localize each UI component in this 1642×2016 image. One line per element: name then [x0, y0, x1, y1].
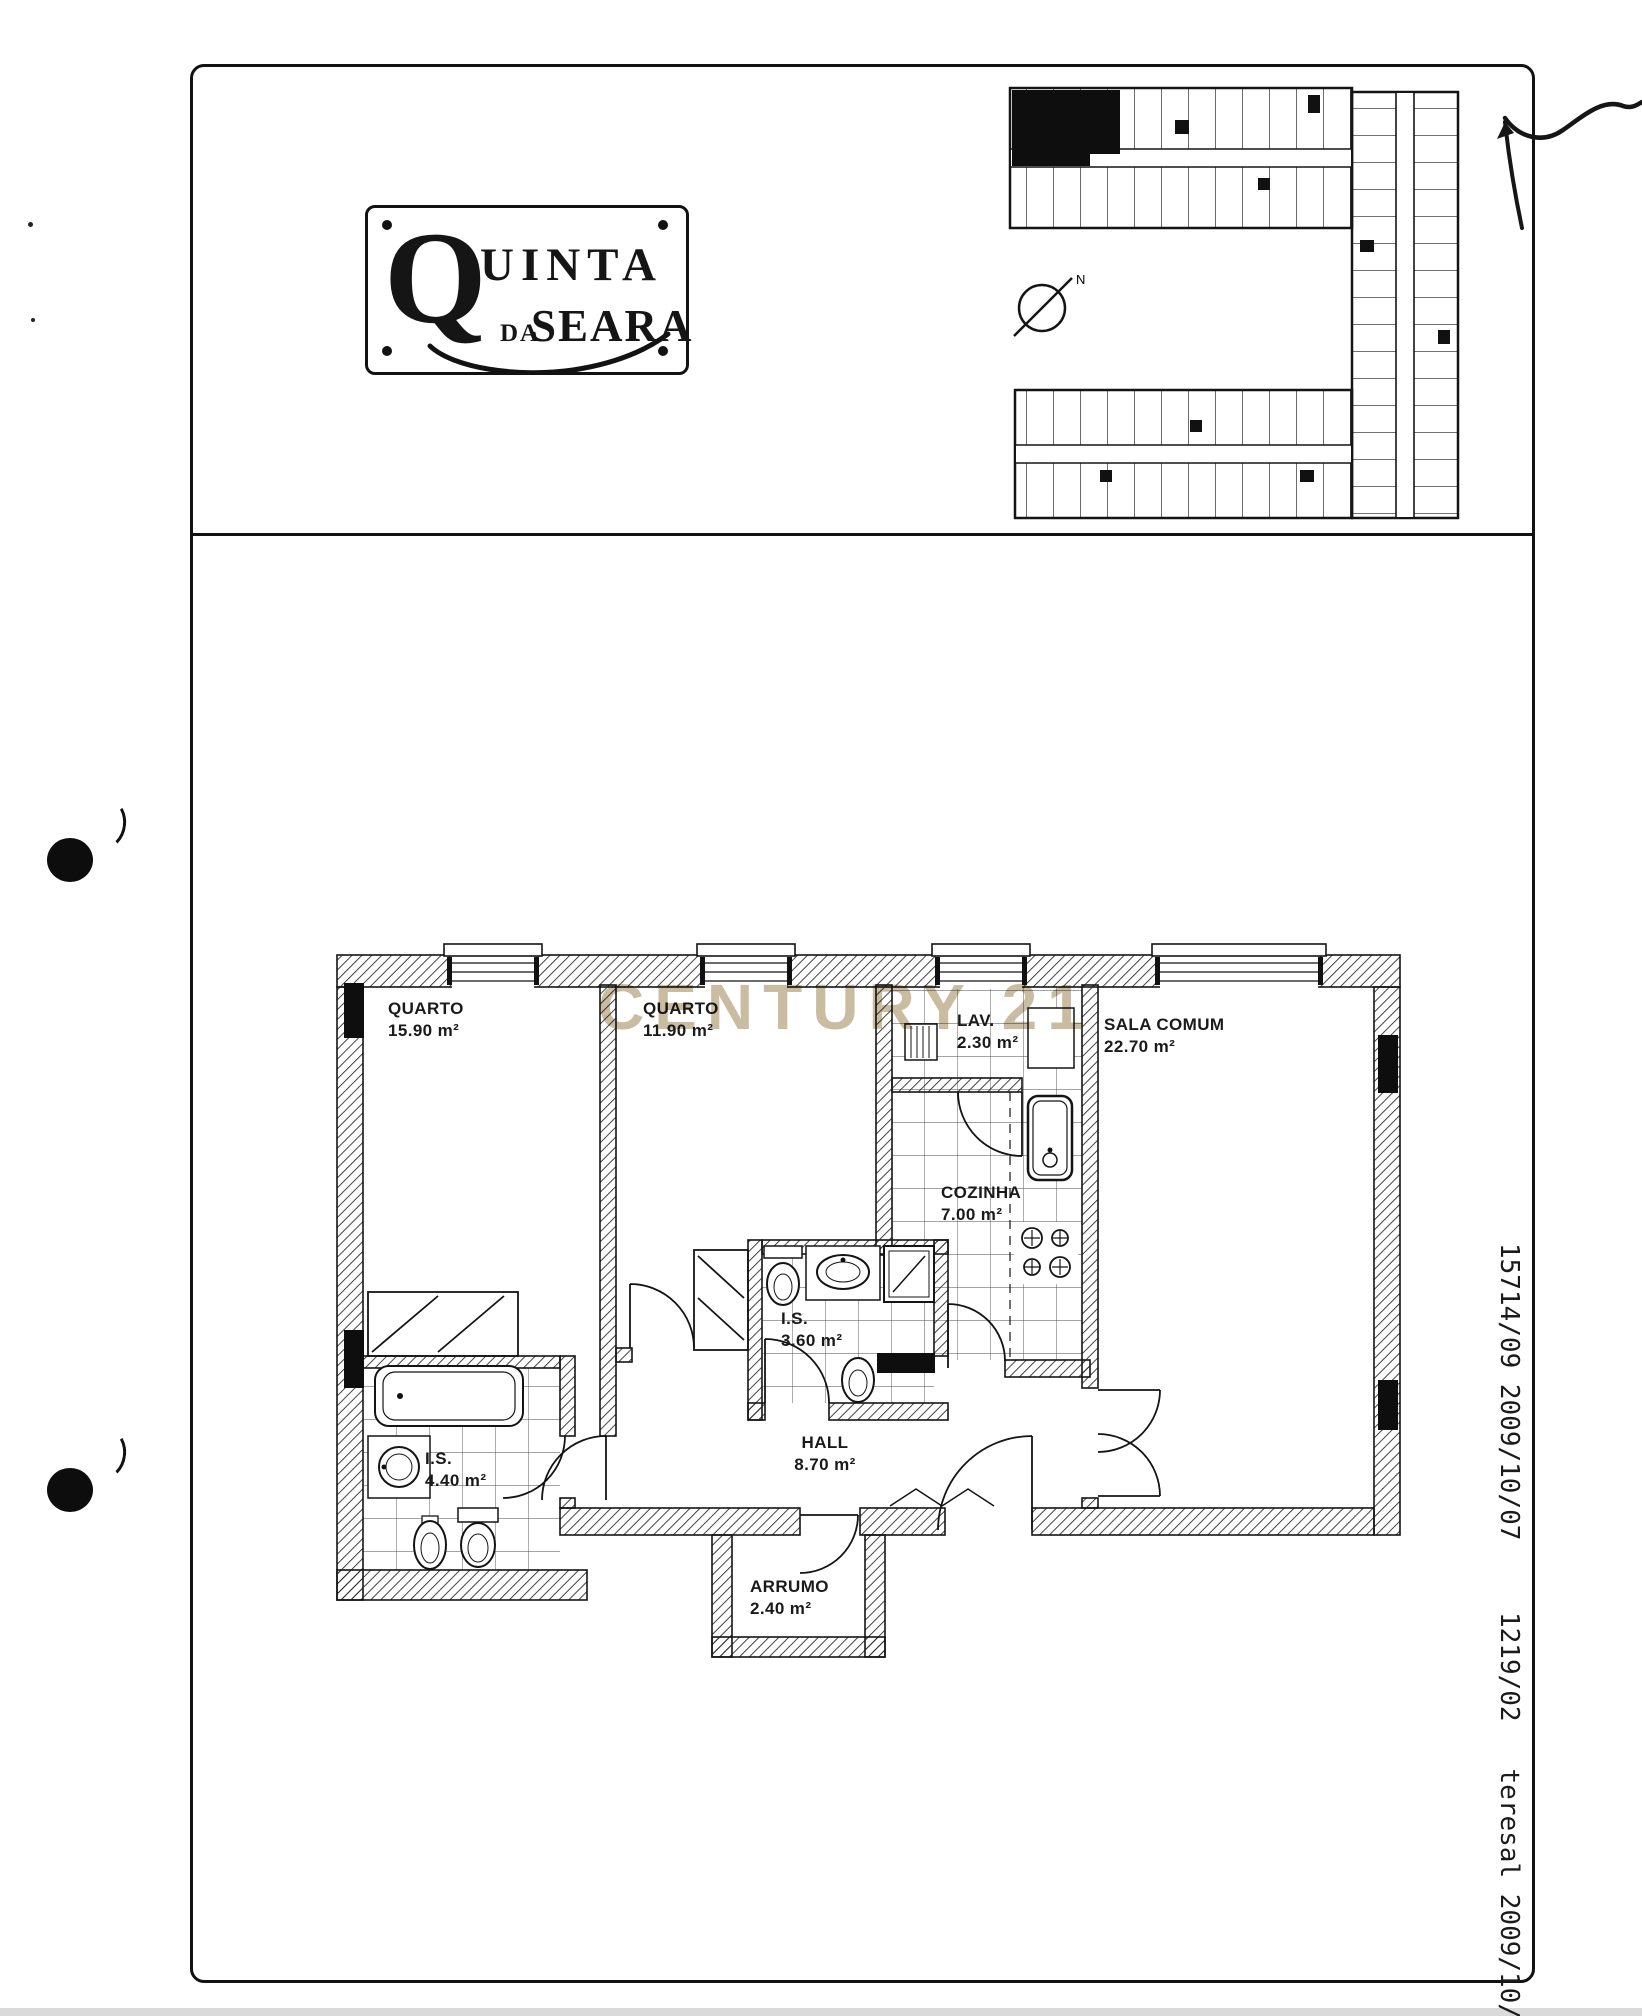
room-area: 3.60 m² — [781, 1330, 842, 1352]
room-label-is-1: I.S. 3.60 m² — [781, 1308, 842, 1352]
room-area: 7.00 m² — [941, 1204, 1021, 1226]
room-name: SALA COMUM — [1104, 1014, 1224, 1036]
room-name: I.S. — [425, 1448, 486, 1470]
scan-speck — [31, 318, 35, 322]
logo-swoosh — [368, 208, 686, 372]
highlighted-unit — [1012, 90, 1120, 154]
bathtub-icon — [375, 1366, 523, 1426]
margin-reference-1: 15714/09 2009/10/07 — [1494, 1243, 1524, 1540]
stove-icon — [1014, 1222, 1078, 1284]
room-label-sala-comum: SALA COMUM 22.70 m² — [1104, 1014, 1224, 1058]
room-name: QUARTO — [388, 998, 464, 1020]
room-area: 22.70 m² — [1104, 1036, 1224, 1058]
hole-punch — [47, 838, 93, 882]
building-key-plan: N — [1002, 75, 1462, 525]
wardrobe-icon — [694, 1250, 748, 1350]
window-icon — [1152, 944, 1326, 989]
room-area: 4.40 m² — [425, 1470, 486, 1492]
room-label-quarto-1: QUARTO 15.90 m² — [388, 998, 464, 1042]
pen-mark — [1440, 80, 1642, 260]
room-area: 15.90 m² — [388, 1020, 464, 1042]
toilet-icon — [764, 1246, 802, 1305]
water-heater-icon — [1028, 1096, 1072, 1180]
apartment-floor-plan — [330, 940, 1410, 1660]
scanner-edge — [0, 2008, 1642, 2016]
door-storage — [800, 1515, 858, 1573]
room-name: I.S. — [781, 1308, 842, 1330]
century21-watermark: CENTURY 21 — [598, 970, 1093, 1044]
door-quarto-2 — [630, 1284, 694, 1348]
compass-north-label: N — [1076, 272, 1085, 287]
entry-door — [938, 1436, 1032, 1530]
room-name: ARRUMO — [750, 1576, 829, 1598]
toilet-icon — [458, 1508, 498, 1567]
wardrobe-icon — [368, 1292, 518, 1356]
room-label-is-2: I.S. 4.40 m² — [425, 1448, 486, 1492]
room-label-cozinha: COZINHA 7.00 m² — [941, 1182, 1021, 1226]
room-label-arrumo: ARRUMO 2.40 m² — [750, 1576, 829, 1620]
room-name: COZINHA — [941, 1182, 1021, 1204]
room-label-hall: HALL 8.70 m² — [775, 1432, 875, 1476]
washbasin-icon — [806, 1246, 880, 1300]
header-divider-line — [190, 533, 1535, 536]
scanned-floorplan-page: Q UINTA DA SEARA — [0, 0, 1642, 2016]
room-area: 8.70 m² — [775, 1454, 875, 1476]
logo-plate: Q UINTA DA SEARA — [365, 205, 689, 375]
margin-reference-2: 1219/02 teresal 2009/10/2 — [1494, 1612, 1524, 2016]
hole-punch-arc — [87, 1428, 129, 1481]
compass-icon: N — [1014, 272, 1085, 336]
room-area: 2.40 m² — [750, 1598, 829, 1620]
washbasin-icon — [368, 1436, 430, 1498]
scan-speck — [28, 222, 33, 227]
window-icon — [444, 944, 542, 989]
wardrobes — [368, 1250, 748, 1356]
hole-punch — [47, 1468, 93, 1512]
shower-icon — [884, 1246, 934, 1302]
hole-punch-arc — [87, 798, 129, 851]
room-name: HALL — [775, 1432, 875, 1454]
bidet-icon — [842, 1358, 874, 1402]
